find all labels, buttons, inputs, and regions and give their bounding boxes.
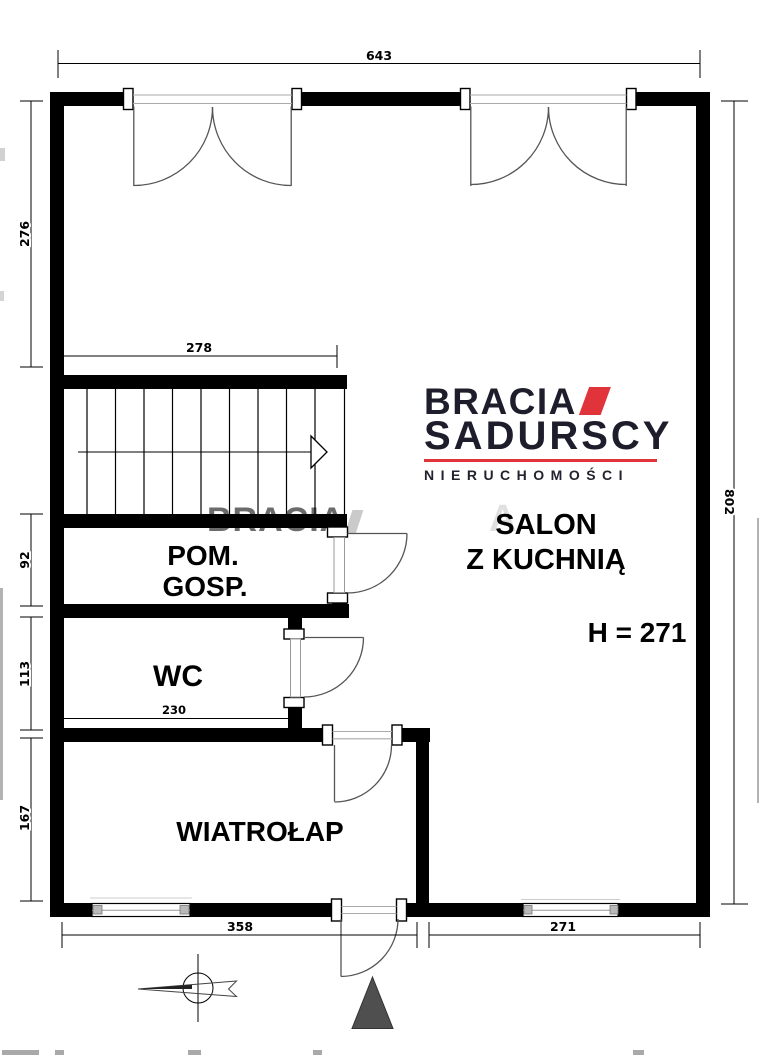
dimension-lines [20, 50, 748, 948]
door-thresholds [133, 95, 627, 914]
stairs-direction-arrowhead-icon [311, 436, 327, 468]
dim-upper-left-height: 276 [17, 221, 32, 247]
floor-plan-drawing: 643 278 276 92 113 167 802 358 271 230 P… [0, 0, 759, 1055]
dim-pomgosp-height: 92 [17, 551, 32, 568]
floor-plan-page: BRACIA A BRACIA SADURSCY NIERUCHOMOŚCI [0, 0, 759, 1055]
logo-brand-bottom-text: SADURSCY [424, 418, 672, 455]
ceiling-height-label: H = 271 [588, 617, 687, 648]
dim-wiatrolap-height: 167 [17, 805, 32, 831]
wall-right [696, 92, 710, 917]
wall-bottom-4 [618, 903, 710, 917]
dim-top-width: 643 [366, 48, 392, 63]
wall-top-2 [298, 92, 463, 106]
door-frames [124, 89, 637, 922]
room-label-salon-line2: Z KUCHNIĄ [466, 544, 626, 576]
agency-logo: BRACIA SADURSCY NIERUCHOMOŚCI [424, 386, 672, 483]
double-door-top-left [134, 107, 291, 187]
room-label-pomgosp-line2: GOSP. [162, 571, 247, 602]
wall-bottom-1 [50, 903, 92, 917]
dim-bottom-right-width: 271 [550, 919, 576, 934]
dim-stairs-width: 278 [186, 340, 212, 355]
dim-wc-height: 113 [17, 661, 32, 687]
window-wiatrolap [90, 898, 192, 917]
wall-stairs-top [57, 375, 347, 389]
wall-wiatrolap-top-1 [50, 728, 326, 742]
door-wiatrolap [335, 745, 392, 802]
wall-pomgosp-bottom [57, 604, 349, 618]
room-label-wc: WC [153, 660, 203, 693]
logo-red-rule [424, 459, 657, 462]
dim-bottom-left-width: 358 [227, 919, 253, 934]
compass-icon [138, 954, 237, 1022]
dim-right-height: 802 [722, 489, 737, 515]
double-door-top-right [471, 107, 626, 187]
north-triangle-icon [352, 977, 393, 1029]
logo-brand-top-row: BRACIA [424, 386, 672, 417]
room-label-pomgosp-line1: POM. [167, 540, 239, 571]
staircase [78, 389, 345, 514]
wall-wiatrolap-right [416, 728, 429, 917]
door-pomgosp [334, 534, 407, 594]
wall-bottom-2 [190, 903, 336, 917]
room-label-wiatrolap: WIATROŁAP [176, 816, 343, 847]
wall-stairs-bottom [57, 514, 347, 528]
dim-wc-width: 230 [162, 703, 186, 717]
door-entrance [341, 919, 398, 977]
walls [50, 92, 710, 917]
logo-brand-top-text: BRACIA [424, 386, 577, 417]
wall-left [50, 92, 64, 917]
window-salon [521, 900, 620, 917]
logo-red-flag-icon [579, 387, 611, 415]
logo-tagline: NIERUCHOMOŚCI [424, 467, 672, 483]
room-label-salon-line1: SALON [495, 509, 597, 541]
